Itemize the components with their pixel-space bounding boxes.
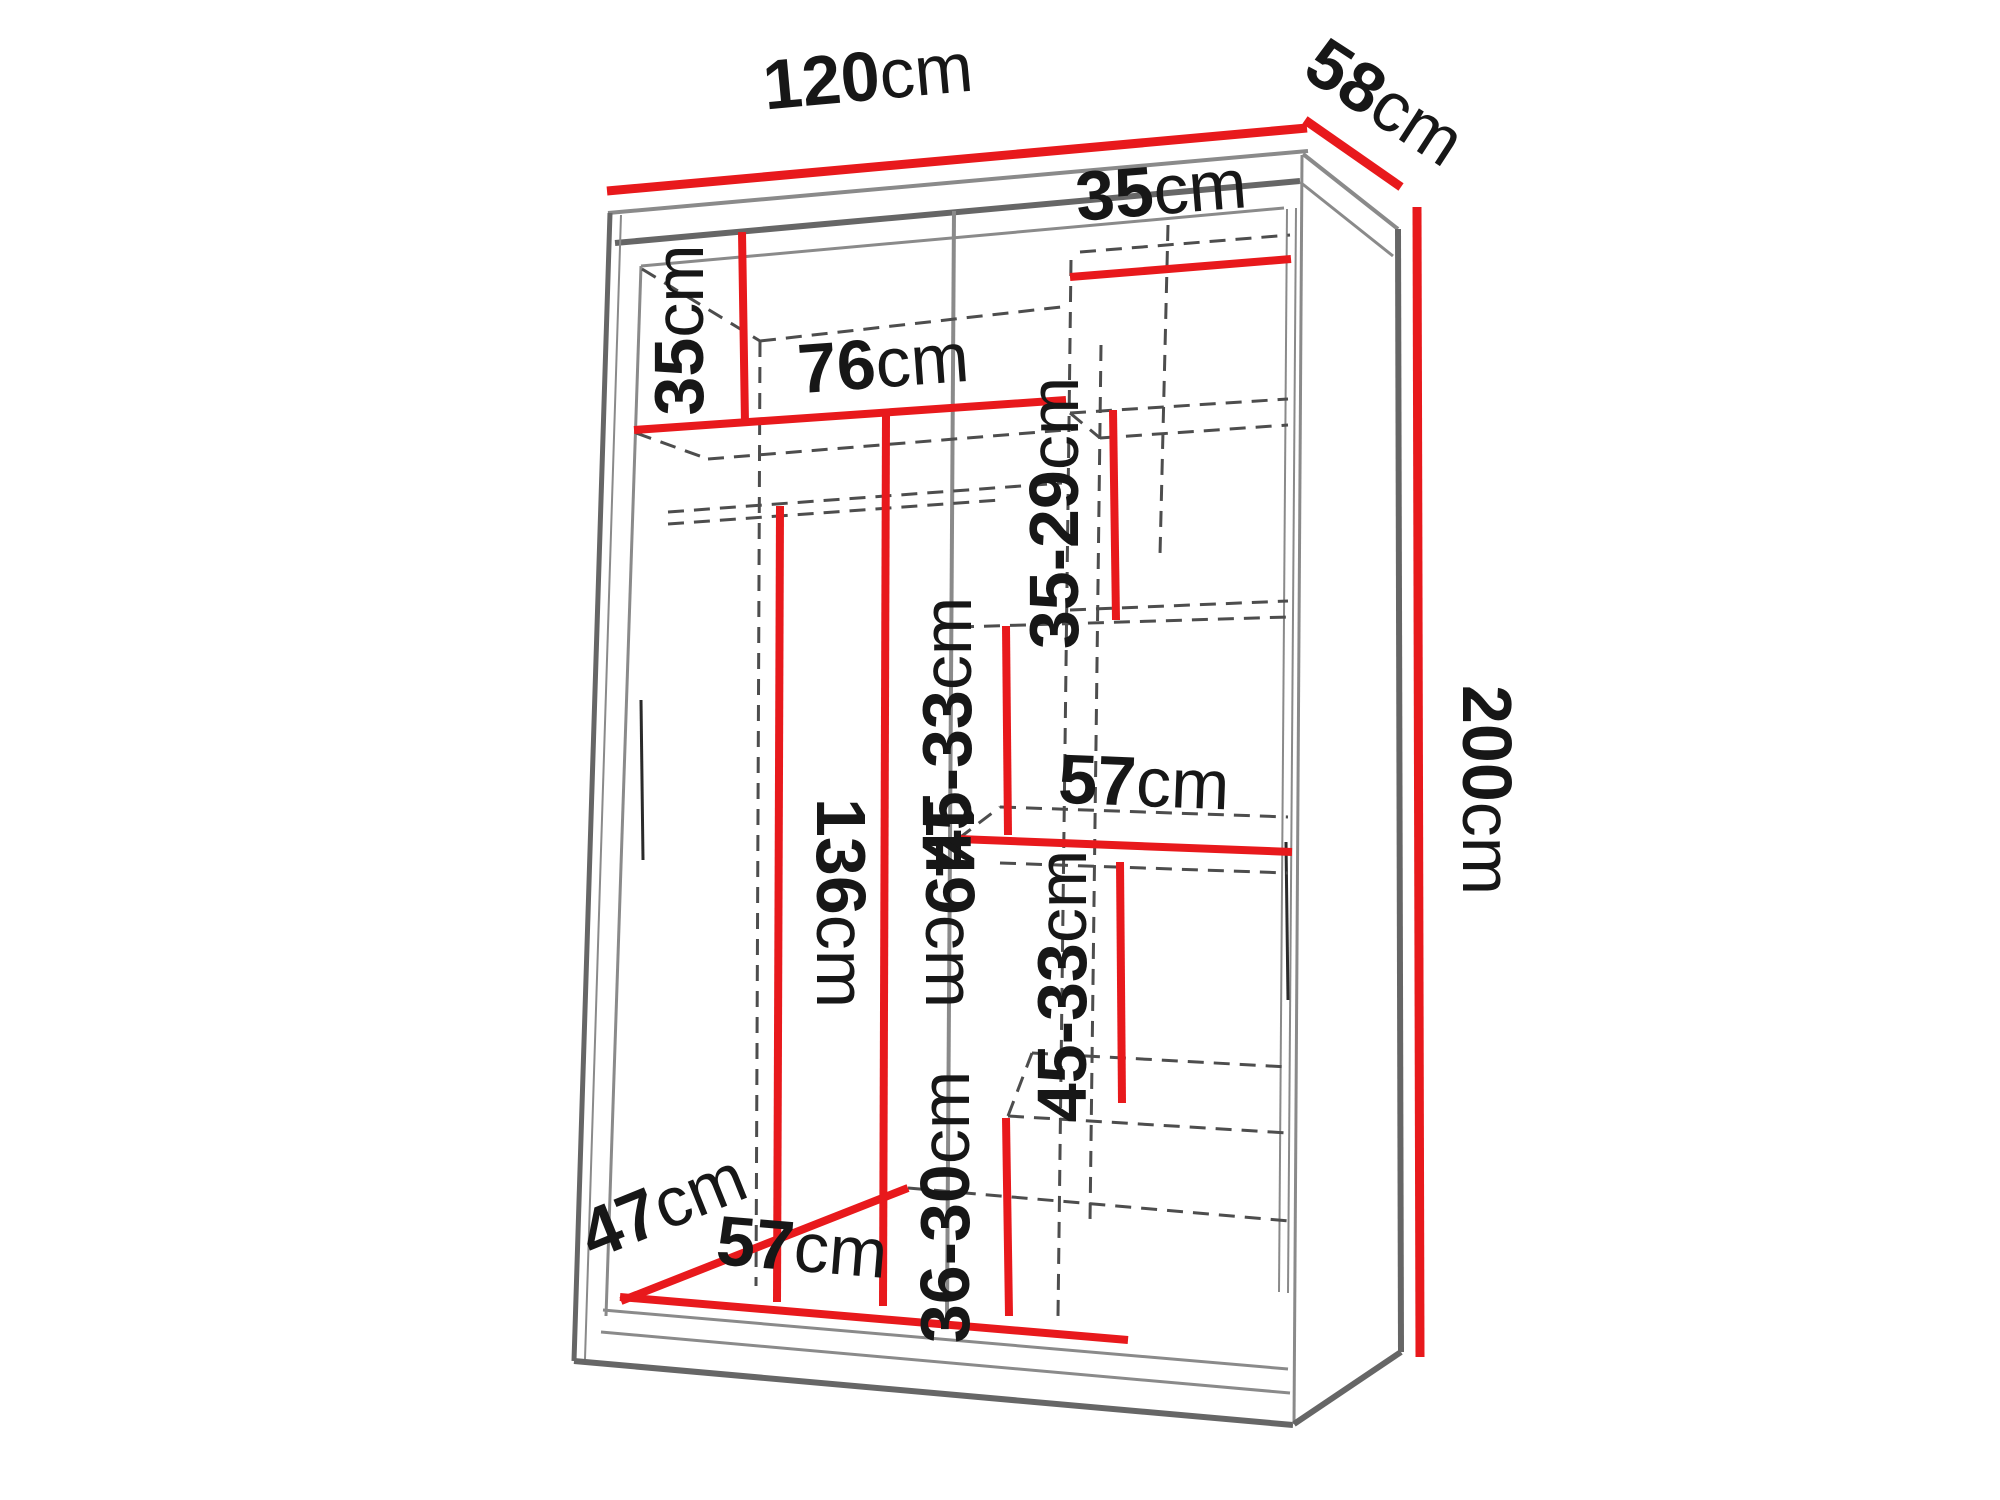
upper-back-vertical: [1160, 225, 1168, 555]
shelf-b-back-edge: [1100, 425, 1288, 438]
inner-left-edge: [606, 266, 641, 1316]
dim-label-hanging-height: 136cm: [802, 798, 880, 1008]
shelf-c-back-edge: [1070, 601, 1288, 610]
dim-label-gap-lower-right: 45-33cm: [1023, 850, 1101, 1122]
dim-line-mid-width-57: [958, 839, 1292, 852]
dim-line-top-left-shelf-35: [742, 232, 745, 424]
side-bottom-edge: [1294, 1352, 1401, 1424]
left-door-handle-groove: [641, 700, 643, 860]
dim-label-gap-top-right: 35-29cm: [1015, 377, 1093, 649]
dim-label-top-right-shelf: 35cm: [1073, 144, 1250, 235]
dim-label-bottom-width: 57cm: [713, 1201, 890, 1293]
dim-label-height: 200cm: [1448, 685, 1526, 895]
wardrobe-dimension-diagram: 120cm 58cm 200cm 35cm 35cm 76cm 35-29cm …: [0, 0, 2000, 1500]
dim-line-gap-45-33-upper: [1006, 626, 1008, 835]
dim-line-gap-35-29: [1113, 410, 1116, 620]
dim-line-left-height-149: [883, 414, 886, 1306]
dim-line-top-right-shelf-35: [1070, 259, 1291, 277]
side-top-edge: [1300, 182, 1393, 256]
shelf-a-back-edge: [1080, 235, 1290, 252]
hanging-rail-front: [668, 483, 1062, 512]
dim-label-left-height: 149cm: [911, 798, 989, 1008]
shelf-b-front-edge: [1070, 399, 1288, 413]
shelf-c-front-edge: [958, 617, 1288, 627]
diagram-canvas: 120cm 58cm 200cm 35cm 35cm 76cm 35-29cm …: [0, 0, 2000, 1500]
dim-label-depth: 58cm: [1292, 23, 1478, 182]
right-door-gap-line-1: [1279, 209, 1287, 1292]
dim-label-gap-bottom-right: 36-30cm: [906, 1071, 984, 1343]
dim-line-height-200: [1417, 207, 1420, 1357]
dim-line-hanging-136: [777, 506, 780, 1302]
dim-line-gap-45-33-lower: [1120, 862, 1122, 1103]
dim-label-top-left-shelf: 35cm: [640, 244, 718, 415]
dim-label-mid-right-width: 57cm: [1057, 740, 1231, 825]
dim-label-left-width: 76cm: [795, 318, 971, 408]
back-right-edge: [1398, 229, 1401, 1352]
back-left-vertical: [756, 341, 760, 1286]
top-shelf-depth-line: [636, 433, 708, 459]
front-bottom-edge: [574, 1361, 1293, 1425]
dim-line-gap-36-30: [1006, 1118, 1009, 1316]
dim-label-width: 120cm: [760, 28, 976, 125]
right-door-handle-groove: [1286, 842, 1288, 1000]
dimension-labels: 120cm 58cm 200cm 35cm 35cm 76cm 35-29cm …: [569, 23, 1526, 1344]
top-depth-edge: [1303, 154, 1398, 229]
